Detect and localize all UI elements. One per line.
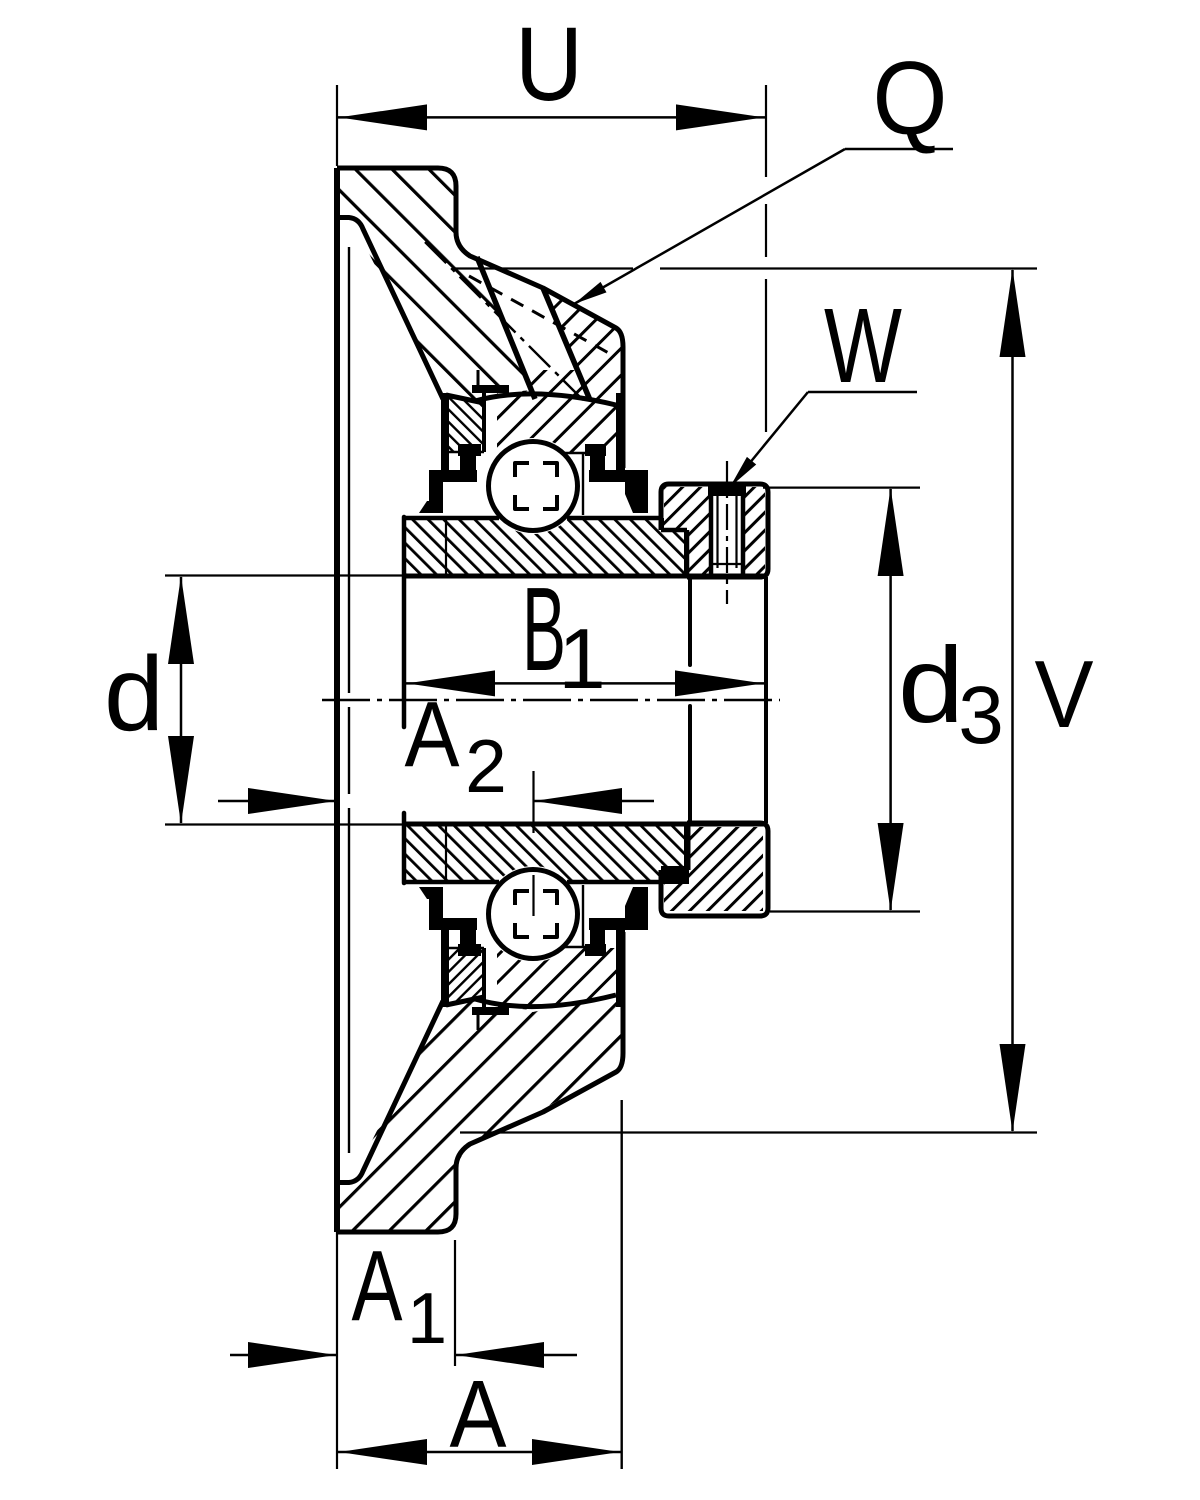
svg-text:2: 2 — [465, 724, 507, 808]
svg-text:A: A — [405, 682, 460, 786]
svg-text:V: V — [1035, 641, 1094, 748]
svg-text:A: A — [352, 1230, 403, 1342]
svg-text:Q: Q — [873, 41, 948, 157]
svg-text:W: W — [824, 287, 902, 405]
svg-text:1: 1 — [407, 1279, 447, 1359]
svg-text:U: U — [515, 6, 583, 123]
svg-text:1: 1 — [558, 612, 605, 707]
svg-text:A: A — [450, 1361, 507, 1468]
svg-text:3: 3 — [958, 670, 1004, 761]
svg-text:d: d — [898, 624, 964, 745]
svg-text:d: d — [104, 635, 164, 753]
